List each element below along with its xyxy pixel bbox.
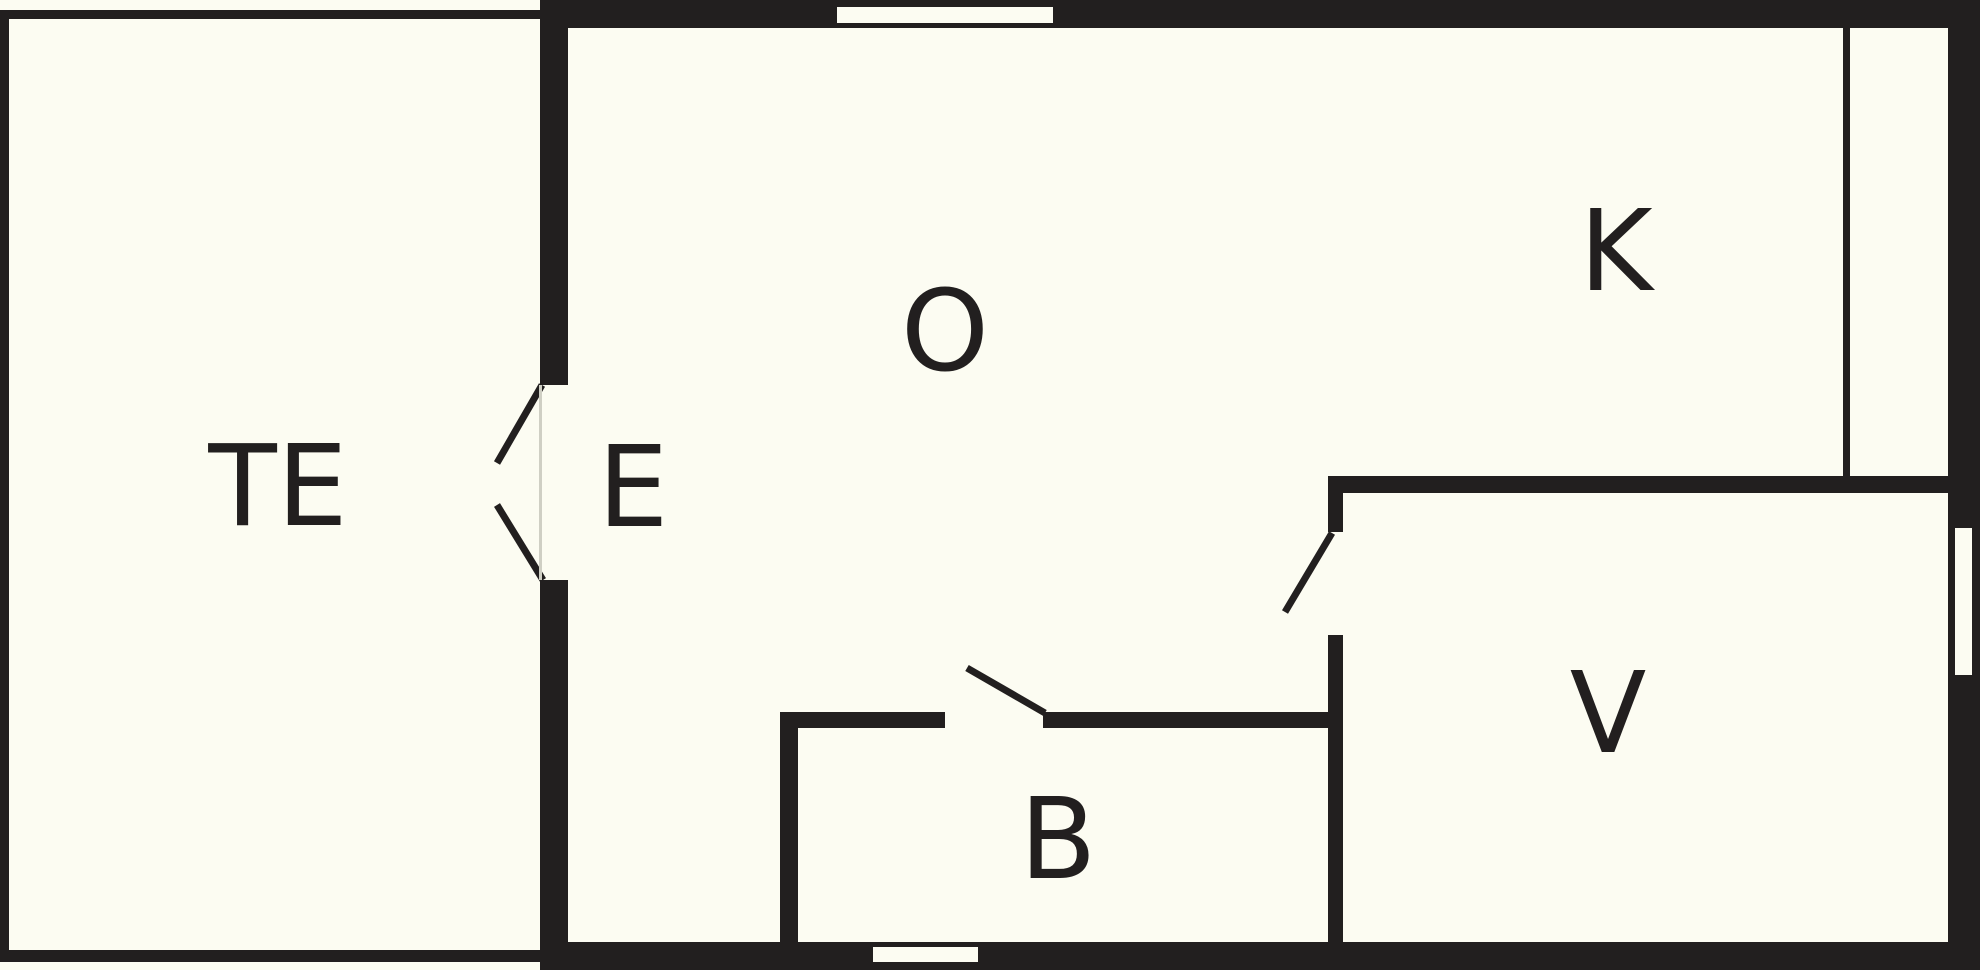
room-label-te: TE xyxy=(208,431,347,543)
b-room-top-wall-left xyxy=(780,712,945,728)
v-room-top-wall xyxy=(1328,476,1950,493)
b-room-door-swing xyxy=(967,668,1045,713)
te-bottom-wall xyxy=(0,950,540,962)
entry-divider-upper xyxy=(540,0,568,385)
entry-door-swing-lower xyxy=(497,505,543,580)
b-room-left-wall xyxy=(780,712,798,942)
top-wall-window xyxy=(837,7,1053,23)
main-top-wall xyxy=(540,0,1980,28)
te-top-wall xyxy=(0,10,540,19)
room-label-e: E xyxy=(598,432,669,544)
right-wall-window xyxy=(1955,528,1972,675)
v-room-left-wall-upper xyxy=(1328,476,1343,532)
kitchen-divider-line xyxy=(1843,28,1850,477)
entry-door-swing-upper xyxy=(497,385,542,463)
b-room-top-wall-right xyxy=(1043,712,1343,728)
right-outer-wall xyxy=(1948,0,1980,970)
v-room-left-wall-lower xyxy=(1328,635,1343,948)
room-label-b: B xyxy=(1020,784,1097,896)
entry-door-threshold xyxy=(539,385,542,580)
entry-divider-lower xyxy=(540,580,568,970)
bottom-wall-window xyxy=(873,947,978,962)
room-label-k: K xyxy=(1579,196,1652,308)
v-room-door-swing xyxy=(1285,533,1332,612)
room-label-o: O xyxy=(901,276,989,388)
te-left-wall xyxy=(0,10,9,962)
room-label-v: V xyxy=(1570,658,1647,770)
floor-plan: TEEOKBV xyxy=(0,0,1980,970)
main-bottom-wall xyxy=(540,942,1980,970)
